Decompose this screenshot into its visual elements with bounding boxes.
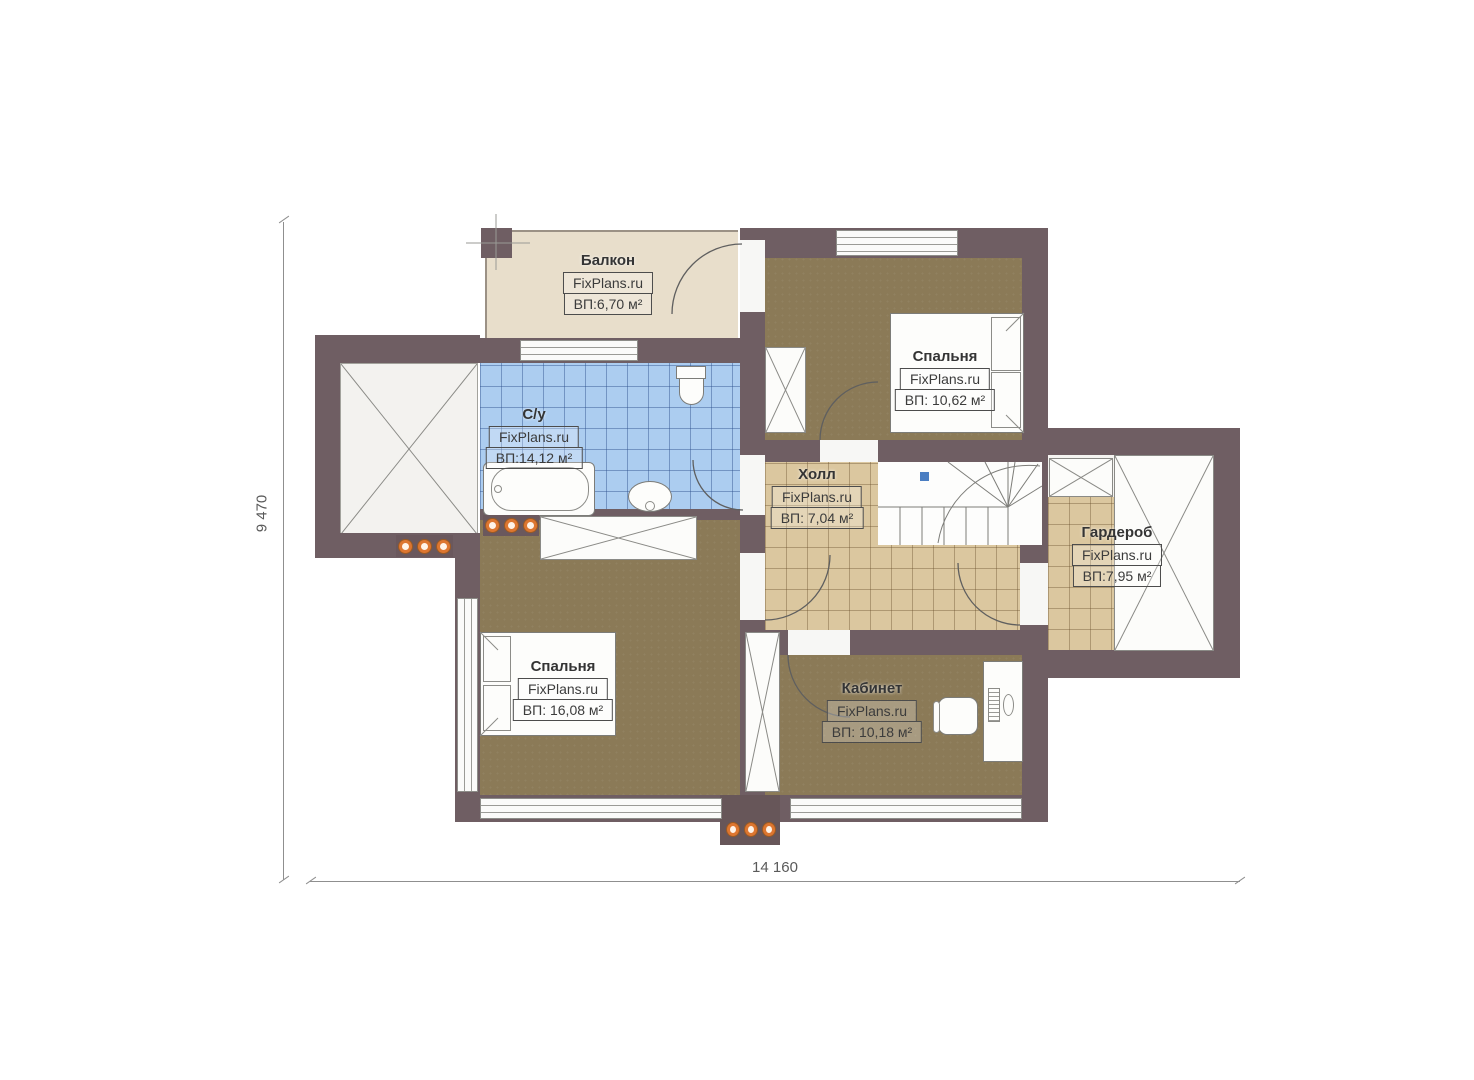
brand-watermark: FixPlans.ru: [827, 700, 917, 722]
window: [836, 230, 958, 256]
wall: [315, 335, 340, 558]
wall: [1022, 228, 1048, 462]
window: [790, 798, 1022, 819]
room-label-bedroom-bottom: Спальня FixPlans.ru ВП: 16,08 м²: [513, 658, 613, 721]
cross-mark-icon: [766, 348, 805, 432]
brand-watermark: FixPlans.ru: [489, 426, 579, 448]
vent-dots: [727, 817, 775, 841]
brand-watermark: FixPlans.ru: [563, 272, 653, 294]
closet: [1049, 458, 1113, 497]
floor-plan: Балкон FixPlans.ru ВП:6,70 м² Спальня Fi…: [0, 0, 1474, 1080]
room-area: ВП:6,70 м²: [564, 293, 653, 315]
dimension-tick: [279, 876, 289, 884]
room-name: Балкон: [581, 252, 635, 269]
toilet-bowl: [679, 378, 704, 405]
room-name: Кабинет: [842, 680, 903, 697]
vent-dot-icon: [505, 519, 518, 532]
office-door-opening: [788, 630, 850, 655]
cross-mark-icon: [746, 633, 779, 791]
vent-dot-icon: [418, 540, 431, 553]
dimension-height-label: 9 470: [254, 474, 271, 554]
room-area: ВП:14,12 м²: [486, 447, 583, 469]
room-label-bedroom-top: Спальня FixPlans.ru ВП: 10,62 м²: [895, 348, 995, 411]
cross-mark-icon: [541, 517, 696, 559]
vent-dot-icon: [486, 519, 499, 532]
wall: [740, 440, 1048, 462]
brand-watermark: FixPlans.ru: [518, 678, 608, 700]
room-name: Спальня: [531, 658, 596, 675]
room-name: Холл: [798, 466, 836, 483]
wall: [1214, 428, 1240, 678]
vent-dot-icon: [437, 540, 450, 553]
balcony-door-opening: [740, 240, 765, 312]
room-label-bathroom: С/у FixPlans.ru ВП:14,12 м²: [486, 406, 583, 469]
bathtub: [483, 462, 595, 516]
room-label-wardrobe: Гардероб FixPlans.ru ВП:7,95 м²: [1072, 524, 1162, 587]
room-area: ВП: 10,18 м²: [822, 721, 922, 743]
bedroom-door-opening: [740, 553, 765, 620]
staircase: [878, 462, 1042, 545]
window: [520, 340, 638, 361]
vent-dots: [396, 535, 453, 557]
dimension-width-label: 14 160: [735, 859, 815, 876]
dimension-line-horizontal: [310, 881, 1240, 882]
room-label-balcony: Балкон FixPlans.ru ВП:6,70 м²: [563, 252, 653, 315]
bedroom-top-door-opening: [820, 440, 878, 462]
room-name: Гардероб: [1082, 524, 1153, 541]
sink: [628, 481, 672, 512]
closet: [540, 516, 697, 560]
room-area: ВП: 10,62 м²: [895, 389, 995, 411]
left-shaft-room: [340, 363, 478, 535]
cross-mark-icon: [1050, 459, 1112, 496]
wall: [1042, 650, 1240, 678]
wall: [1042, 428, 1240, 455]
office-chair: [938, 697, 978, 735]
cross-mark-icon: [341, 364, 477, 534]
desk: [983, 661, 1023, 762]
brand-watermark: FixPlans.ru: [1072, 544, 1162, 566]
room-label-hall: Холл FixPlans.ru ВП: 7,04 м²: [771, 466, 864, 529]
bathroom-door-opening: [740, 455, 765, 515]
room-label-office: Кабинет FixPlans.ru ВП: 10,18 м²: [822, 680, 922, 743]
brand-watermark: FixPlans.ru: [900, 368, 990, 390]
wall: [740, 630, 1048, 655]
window: [480, 798, 722, 819]
vent-dot-icon: [399, 540, 412, 553]
balcony-pillar: [481, 228, 512, 258]
wardrobe-door-opening: [1020, 563, 1048, 625]
vent-dot-icon: [763, 823, 775, 836]
vent-dot-icon: [745, 823, 757, 836]
vent-dot-icon: [524, 519, 537, 532]
vent-dot-icon: [727, 823, 739, 836]
room-area: ВП:7,95 м²: [1073, 565, 1162, 587]
room-area: ВП: 16,08 м²: [513, 699, 613, 721]
closet: [765, 347, 806, 433]
room-area: ВП: 7,04 м²: [771, 507, 864, 529]
dimension-line-vertical: [283, 222, 284, 880]
room-name: С/у: [522, 406, 545, 423]
duct-shaft: [745, 632, 780, 792]
window: [457, 598, 478, 792]
room-name: Спальня: [913, 348, 978, 365]
dimension-tick: [279, 216, 289, 224]
brand-watermark: FixPlans.ru: [772, 486, 862, 508]
vent-dots: [483, 515, 539, 536]
